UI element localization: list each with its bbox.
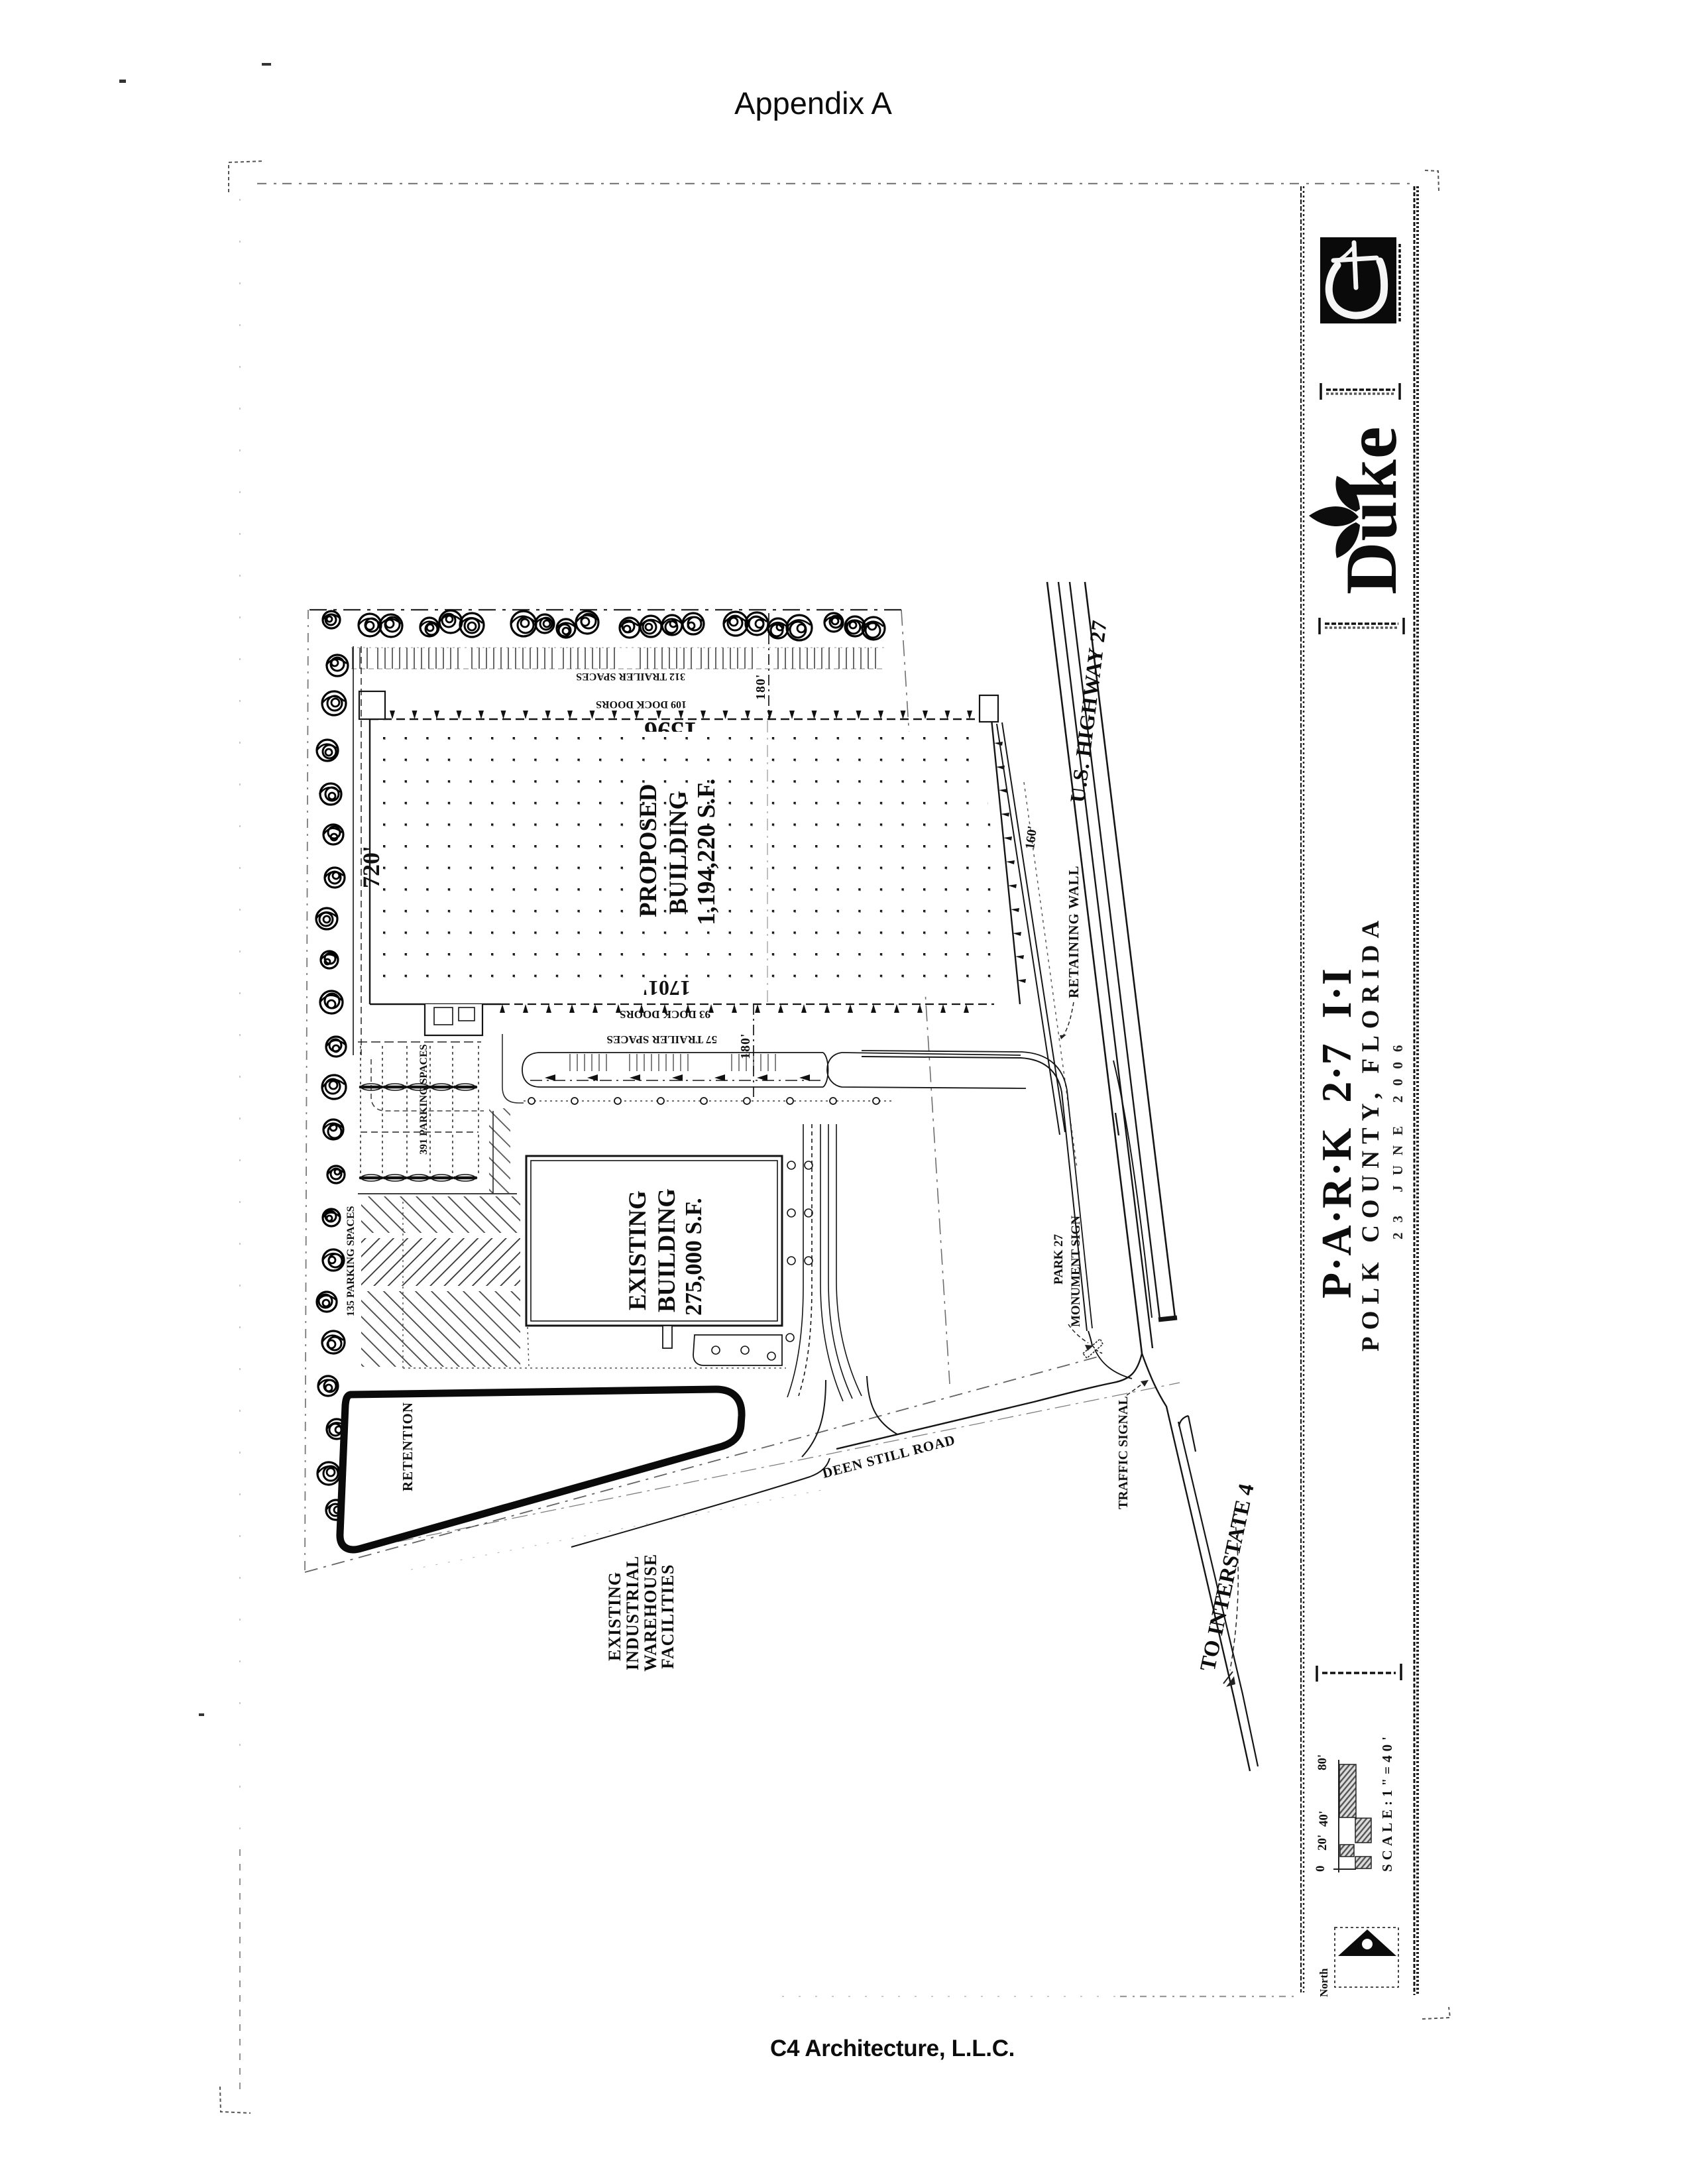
svg-text:160': 160' — [1023, 825, 1040, 850]
svg-text:TRAFFIC SIGNAL: TRAFFIC SIGNAL — [1116, 1396, 1131, 1509]
svg-text:BUILDING: BUILDING — [665, 791, 692, 915]
svg-text:40': 40' — [1317, 1811, 1331, 1827]
svg-text:80': 80' — [1316, 1754, 1329, 1770]
svg-text:180': 180' — [754, 673, 768, 700]
svg-text:EXISTING: EXISTING — [624, 1190, 651, 1310]
svg-text:109 DOCK DOORS: 109 DOCK DOORS — [596, 699, 687, 710]
svg-text:1701': 1701' — [642, 976, 691, 1000]
svg-text:EXISTING: EXISTING — [605, 1572, 624, 1661]
svg-text:93 DOCK DOORS: 93 DOCK DOORS — [620, 1008, 710, 1021]
svg-text:PARK 27: PARK 27 — [1052, 1234, 1066, 1285]
svg-text:23 JUNE 2006: 23 JUNE 2006 — [1390, 1035, 1406, 1239]
svg-text:275,000 S.F.: 275,000 S.F. — [681, 1198, 706, 1316]
svg-text:57 TRAILER SPACES: 57 TRAILER SPACES — [606, 1033, 717, 1046]
svg-text:Appendix A: Appendix A — [734, 86, 892, 121]
svg-text:PROPOSED: PROPOSED — [635, 784, 662, 917]
svg-text:1,194,220 S.F.: 1,194,220 S.F. — [693, 779, 720, 925]
svg-text:180': 180' — [738, 1033, 753, 1059]
svg-text:391 PARKING SPACES: 391 PARKING SPACES — [418, 1044, 429, 1155]
svg-text:POLK COUNTY, FLORIDA: POLK COUNTY, FLORIDA — [1357, 914, 1384, 1351]
svg-text:SCALE:1"=40': SCALE:1"=40' — [1379, 1733, 1395, 1872]
svg-text:C4 Architecture, L.L.C.: C4 Architecture, L.L.C. — [770, 2036, 1015, 2061]
svg-text:BUILDING: BUILDING — [653, 1188, 681, 1312]
svg-text:0: 0 — [1314, 1866, 1327, 1872]
svg-text:FACILITIES: FACILITIES — [658, 1564, 677, 1669]
svg-text:WAREHOUSE: WAREHOUSE — [641, 1554, 660, 1672]
svg-text:RETENTION: RETENTION — [400, 1402, 416, 1491]
svg-text:INDUSTRIAL: INDUSTRIAL — [623, 1556, 642, 1670]
svg-text:P·A·R·K 2·7 I·I: P·A·R·K 2·7 I·I — [1313, 967, 1360, 1298]
svg-text:20': 20' — [1316, 1835, 1329, 1851]
svg-text:RETAINING WALL: RETAINING WALL — [1066, 865, 1082, 998]
svg-text:North: North — [1318, 1968, 1330, 1997]
svg-text:312 TRAILER SPACES: 312 TRAILER SPACES — [576, 671, 685, 682]
svg-text:135 PARKING SPACES: 135 PARKING SPACES — [345, 1206, 357, 1316]
svg-text:720': 720' — [358, 846, 384, 888]
